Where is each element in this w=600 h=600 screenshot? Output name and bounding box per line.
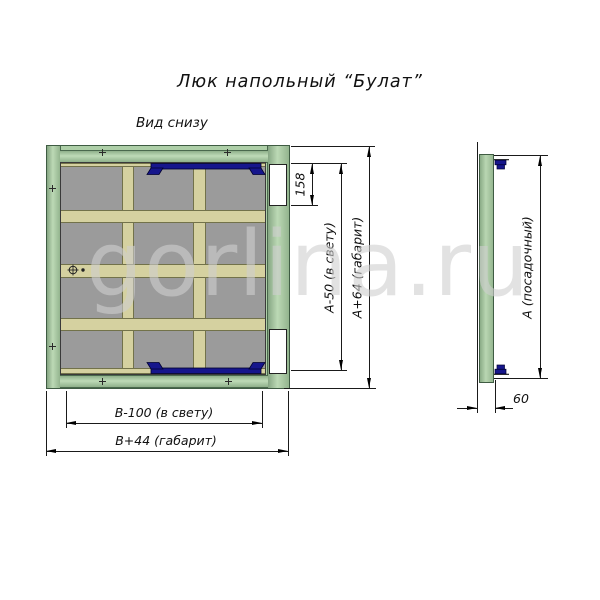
arrowhead xyxy=(367,147,371,157)
screw-plus-icon xyxy=(99,149,106,156)
arrowhead xyxy=(339,360,343,370)
dimension-line-overall-height xyxy=(369,147,370,388)
side-hinge-bottom-icon xyxy=(493,359,511,377)
dim-clear-width: В-100 (в свету) xyxy=(84,405,244,420)
arrowhead xyxy=(66,421,76,425)
arrowhead xyxy=(339,164,343,174)
hinge-assembly-top-icon xyxy=(146,161,266,177)
arrowhead xyxy=(46,449,56,453)
arrowhead xyxy=(467,406,477,410)
arrowhead xyxy=(495,406,505,410)
dim-hinge-recess: 158 xyxy=(293,165,308,205)
datum-crosshair-icon xyxy=(64,262,88,278)
hinge-recess-top xyxy=(269,164,287,206)
frame-left-strip xyxy=(47,146,61,388)
dimension-line-seat-height xyxy=(540,156,541,378)
dim-depth: 60 xyxy=(506,391,536,406)
extension-line xyxy=(288,391,289,456)
drawing-canvas: Люк напольный “Булат” Вид снизу xyxy=(0,0,600,600)
extension-line xyxy=(291,205,318,206)
page-title: Люк напольный “Булат” xyxy=(0,72,600,92)
frame-bottom-bar xyxy=(60,375,268,388)
extension-line xyxy=(291,370,347,371)
arrowhead xyxy=(538,368,542,378)
dim-seat-height: А (посадочный) xyxy=(520,188,535,348)
screw-plus-icon xyxy=(224,149,231,156)
hatch-door-panel xyxy=(60,162,266,375)
arrowhead xyxy=(252,421,262,425)
hinge-assembly-bottom-icon xyxy=(146,360,266,376)
arrowhead xyxy=(538,156,542,166)
extension-line xyxy=(46,391,47,456)
screw-plus-icon xyxy=(99,378,106,385)
arrowhead xyxy=(310,195,314,205)
screw-plus-icon xyxy=(49,343,56,350)
stiffener-horizontal xyxy=(61,210,265,223)
screw-plus-icon xyxy=(49,185,56,192)
extension-line xyxy=(291,146,375,147)
stiffener-horizontal xyxy=(61,264,265,278)
stiffener-horizontal xyxy=(61,318,265,331)
arrowhead xyxy=(310,164,314,174)
dimension-line-clear-height xyxy=(341,164,342,370)
arrowhead xyxy=(278,449,288,453)
view-label: Вид снизу xyxy=(136,115,208,131)
dim-overall-width: В+44 (габарит) xyxy=(86,433,246,448)
extension-line xyxy=(284,388,376,389)
dim-overall-height: А+64 (габарит) xyxy=(350,203,365,333)
dimension-line-overall-width xyxy=(46,451,288,452)
arrowhead xyxy=(367,378,371,388)
extension-line xyxy=(494,378,548,379)
dim-clear-height: А-50 (в свету) xyxy=(322,208,337,328)
side-hinge-top-icon xyxy=(493,157,511,175)
screw-plus-icon xyxy=(225,378,232,385)
side-face-line xyxy=(477,142,478,413)
side-view-hatch-body xyxy=(479,154,494,383)
extension-line xyxy=(262,391,263,428)
dimension-line-clear-width xyxy=(66,423,262,424)
hinge-recess-bottom xyxy=(269,329,287,374)
